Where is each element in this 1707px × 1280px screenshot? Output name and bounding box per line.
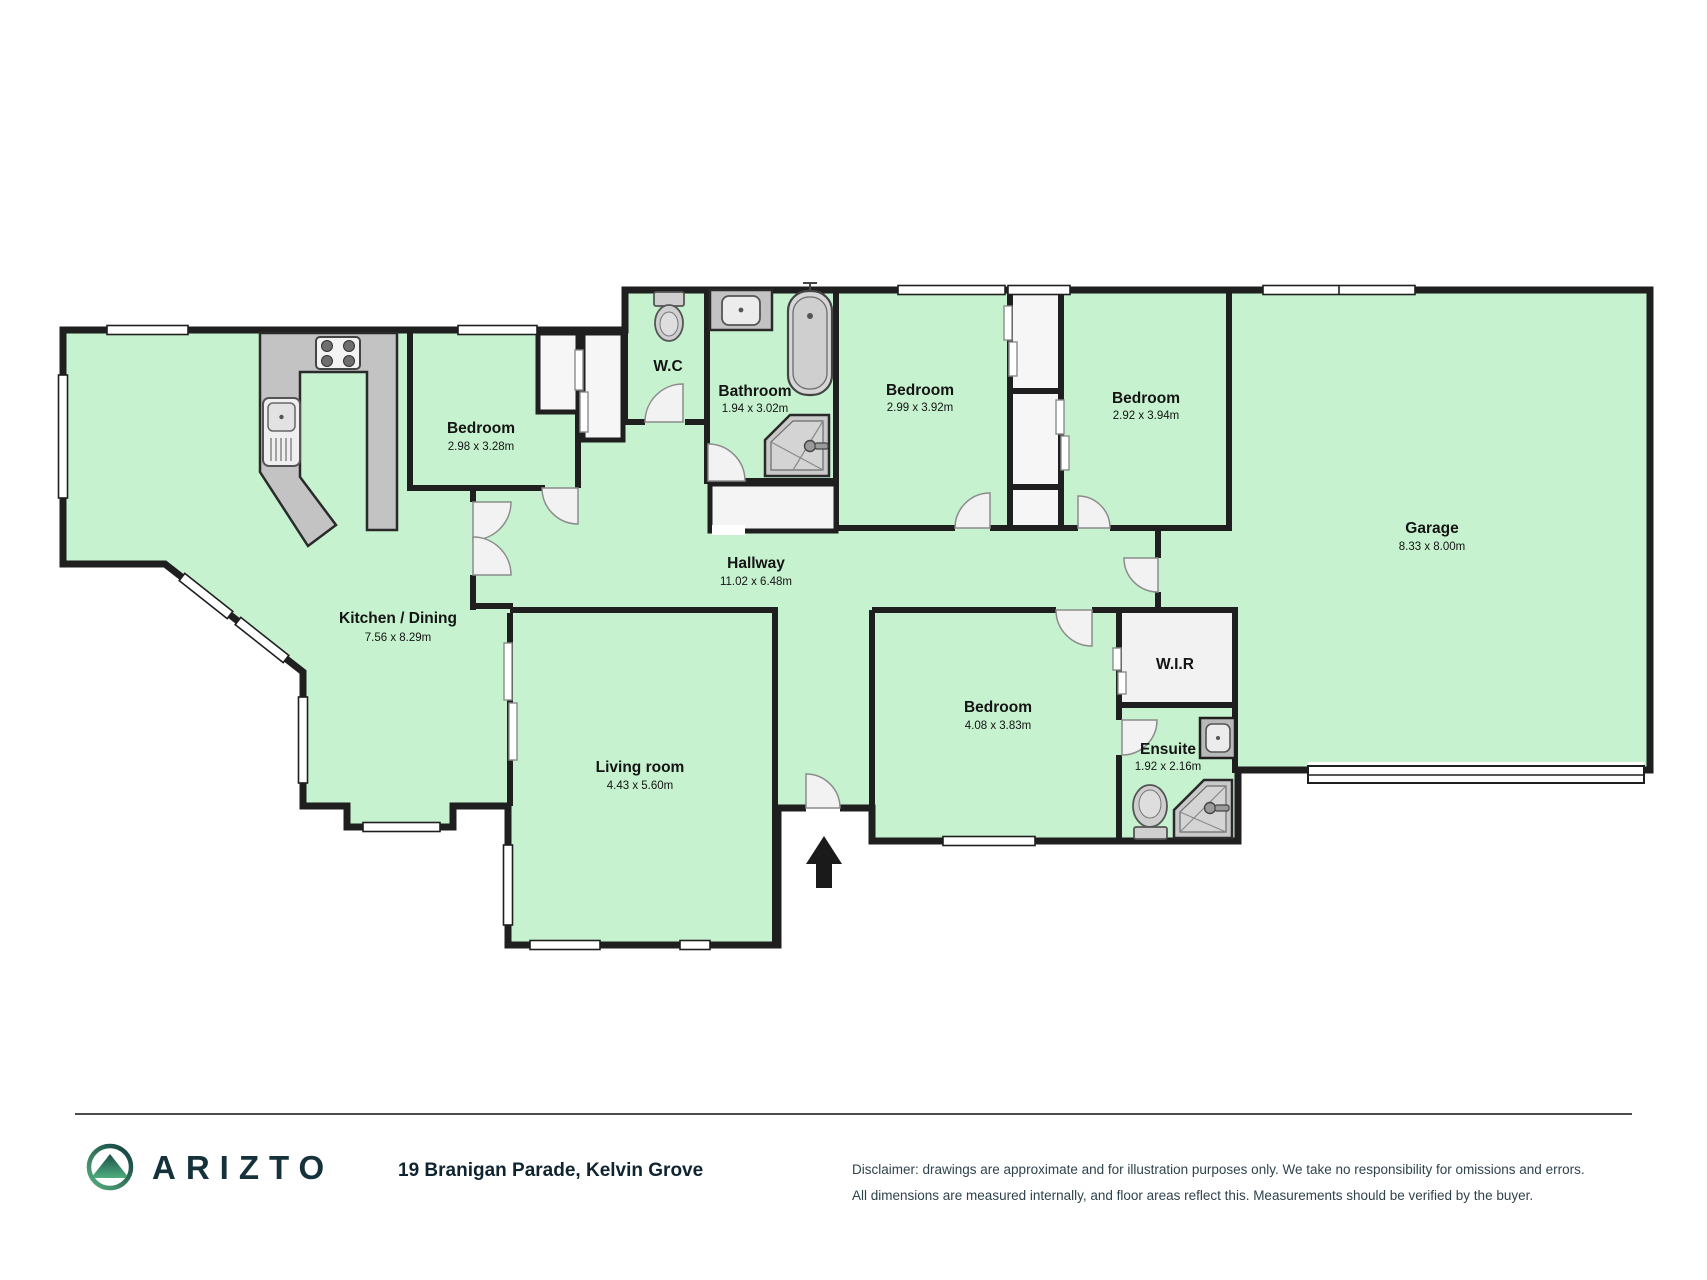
label-bedroom2: Bedroom [886,382,954,399]
slat-kitchen-living-a [504,643,512,700]
slat-closet-top-a [1004,306,1012,340]
slat-closet-mid-b [1061,436,1069,470]
entry-arrow-icon [806,836,842,888]
bathroom-vanity-icon [710,290,772,330]
label-hallway: Hallway [727,555,785,572]
slat-bedroom1-closet-b [580,392,588,432]
label-bathroom: Bathroom [718,383,791,400]
dims-bedroom4: 4.08 x 3.83m [965,720,1031,732]
bathtub-icon [788,283,832,395]
dims-bedroom3: 2.92 x 3.94m [1113,410,1179,422]
dims-hallway: 11.02 x 6.48m [720,576,792,588]
label-garage: Garage [1405,520,1459,537]
hall-closet [583,333,623,440]
label-ensuite: Ensuite [1140,741,1196,758]
disclaimer-line-1: Disclaimer: drawings are approximate and… [852,1157,1642,1183]
dims-bathroom: 1.94 x 3.02m [722,403,788,415]
floor-plan: Kitchen / Dining 7.56 x 8.29m Bedroom 2.… [0,0,1707,1113]
slat-closet-top-b [1009,342,1017,376]
window-living-bottom-2 [680,941,710,950]
dims-bedroom1: 2.98 x 3.28m [448,441,514,453]
window-bedroom4-bottom [943,837,1035,846]
footer: ARIZTO 19 Branigan Parade, Kelvin Grove … [0,1113,1707,1280]
window-bedroom3-top [1008,286,1070,295]
slat-wir-a [1113,648,1121,670]
disclaimer-text: Disclaimer: drawings are approximate and… [852,1157,1642,1209]
wc-toilet-icon [654,292,684,341]
window-kitchen-bay-bottom [363,823,440,832]
brand-name: ARIZTO [152,1149,334,1187]
bedroom1-closet [538,333,578,412]
label-living-room: Living room [596,759,685,776]
window-bedroom2-top [898,286,1005,295]
label-bedroom4: Bedroom [964,699,1032,716]
slat-kitchen-living-b [509,703,517,760]
label-kitchen-dining: Kitchen / Dining [339,610,457,627]
property-address: 19 Branigan Parade, Kelvin Grove [398,1160,703,1182]
stove-icon [316,337,360,369]
dims-ensuite: 1.92 x 2.16m [1135,761,1201,773]
closet-column [1010,293,1061,530]
dims-kitchen-dining: 7.56 x 8.29m [365,632,431,644]
window-living-left [504,845,513,925]
window-kitchen-lower-left [299,697,308,783]
window-kitchen-left [59,375,68,498]
linen-closet-opening [712,525,745,535]
dims-garage: 8.33 x 8.00m [1399,541,1465,553]
kitchen-sink-icon [263,398,300,466]
label-wc: W.C [653,358,682,375]
dims-living-room: 4.43 x 5.60m [607,780,673,792]
label-wir: W.I.R [1156,656,1194,673]
window-bedroom1-top [458,326,537,335]
slat-closet-mid-a [1056,400,1064,434]
disclaimer-line-2: All dimensions are measured internally, … [852,1183,1642,1209]
ensuite-toilet-icon [1133,785,1167,839]
arizto-logo-icon [84,1141,136,1193]
slat-wir-b [1118,672,1126,694]
window-kitchen-top [107,326,188,335]
hall-linen-closet [710,484,836,531]
window-living-bottom-1 [530,941,600,950]
ensuite-vanity-icon [1200,718,1235,758]
dims-bedroom2: 2.99 x 3.92m [887,402,953,414]
slat-bedroom1-closet-a [575,350,583,390]
footer-divider [75,1113,1632,1115]
garage-door [1308,762,1644,783]
label-bedroom3: Bedroom [1112,390,1180,407]
label-bedroom1: Bedroom [447,420,515,437]
